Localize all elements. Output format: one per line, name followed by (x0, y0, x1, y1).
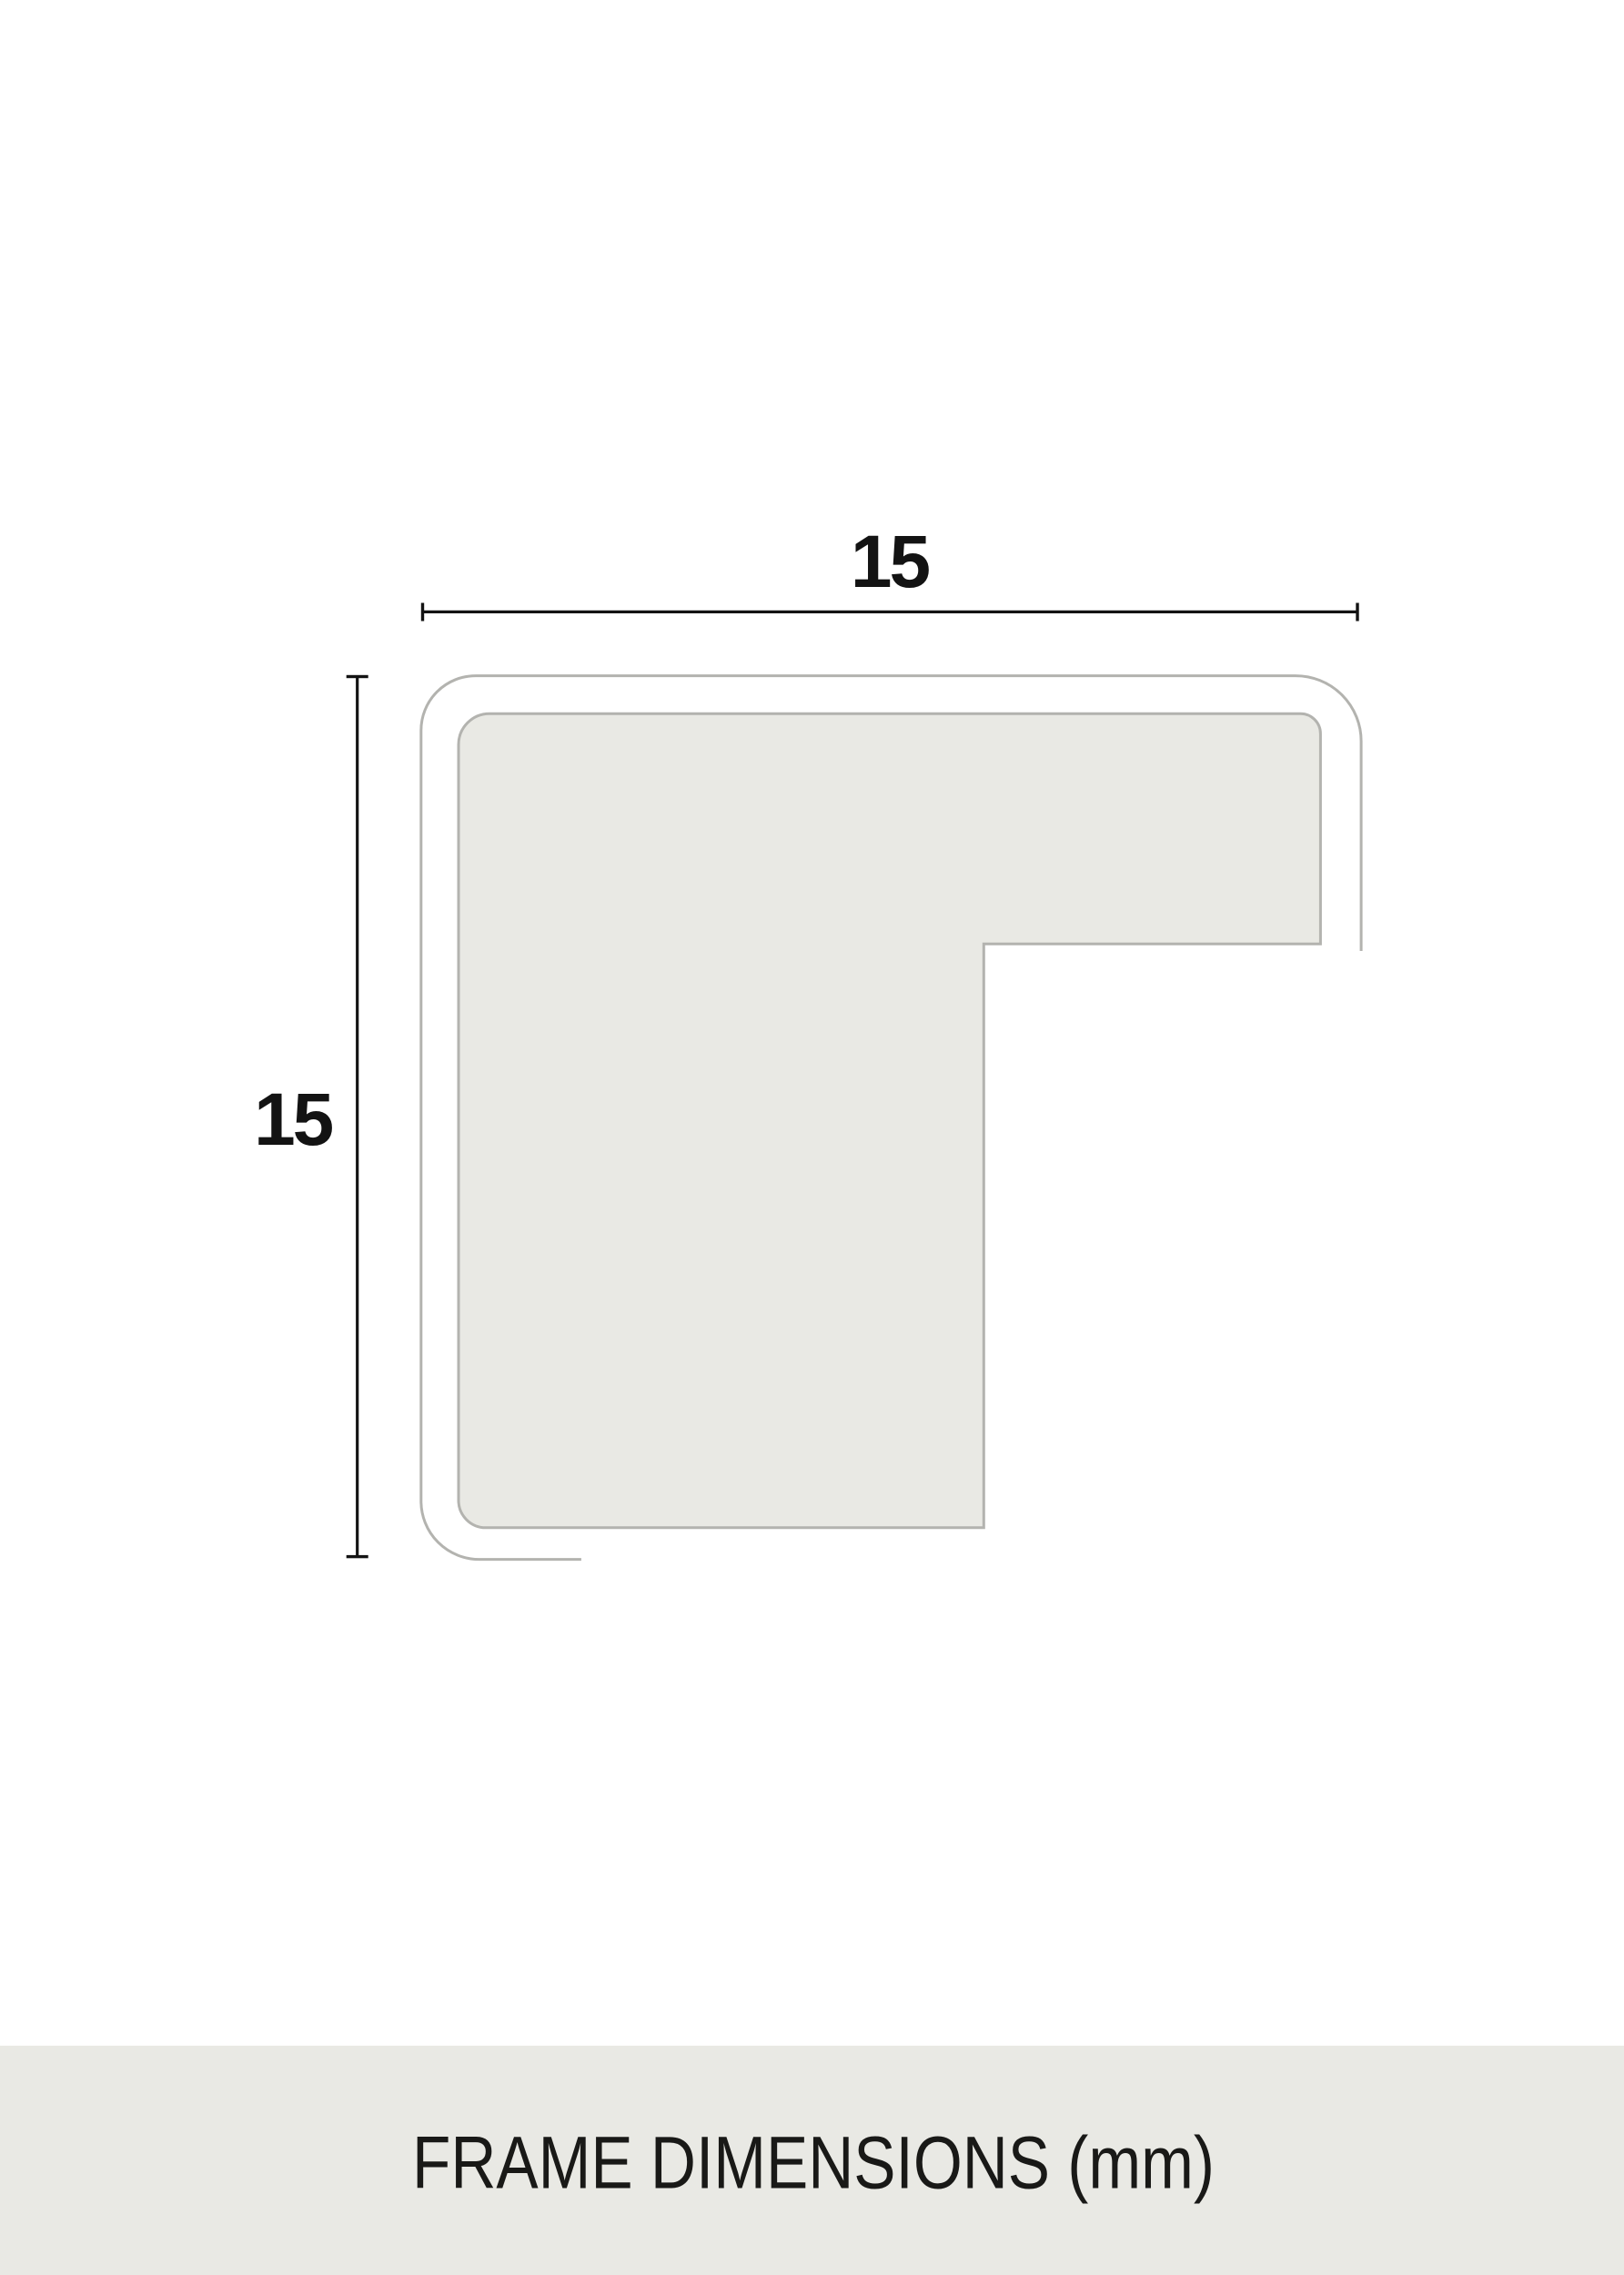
svg-text:FRAME DIMENSIONS (mm): FRAME DIMENSIONS (mm) (412, 2122, 1215, 2205)
svg-text:15: 15 (254, 1078, 333, 1161)
svg-text:15: 15 (851, 521, 930, 603)
